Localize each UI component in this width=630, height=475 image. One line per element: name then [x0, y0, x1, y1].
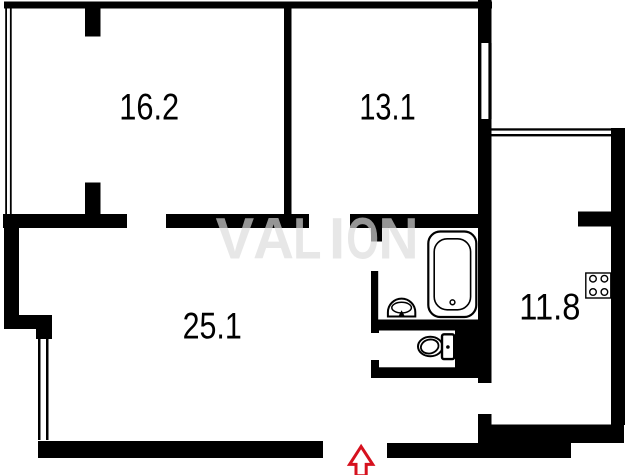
svg-text:16.2: 16.2: [119, 87, 179, 128]
svg-text:V: V: [216, 207, 255, 272]
svg-text:L: L: [293, 207, 321, 272]
svg-text:O: O: [346, 206, 379, 271]
svg-text:N: N: [378, 207, 418, 271]
svg-text:13.1: 13.1: [359, 87, 415, 128]
svg-text:A: A: [253, 207, 294, 272]
svg-text:I: I: [329, 207, 345, 272]
svg-text:25.1: 25.1: [183, 306, 242, 348]
svg-text:11.8: 11.8: [519, 286, 580, 327]
